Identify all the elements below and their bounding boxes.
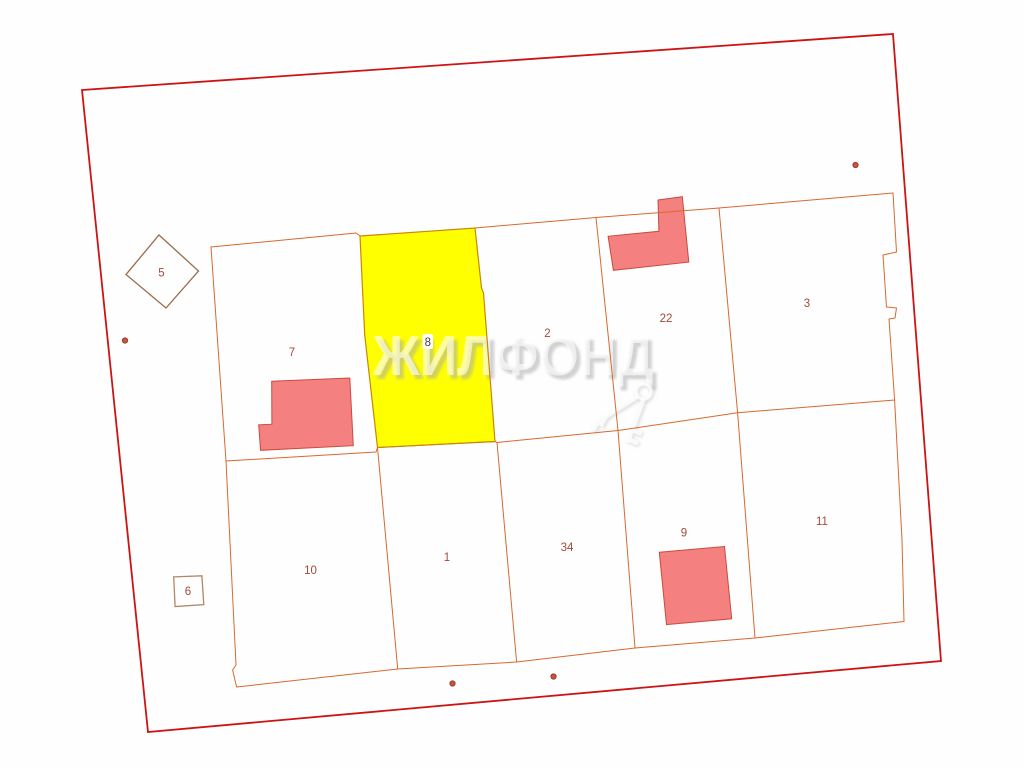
svg-text:3: 3	[804, 298, 810, 310]
svg-text:8: 8	[425, 337, 431, 349]
svg-text:22: 22	[660, 313, 673, 325]
svg-text:11: 11	[816, 516, 828, 528]
svg-text:10: 10	[304, 565, 317, 577]
svg-text:9: 9	[681, 528, 687, 540]
svg-text:34: 34	[561, 542, 574, 554]
svg-text:1: 1	[444, 552, 450, 564]
svg-text:7: 7	[289, 347, 295, 359]
svg-text:2: 2	[544, 328, 550, 340]
svg-text:ЖИЛФОНД: ЖИЛФОНД	[371, 324, 653, 388]
svg-text:5: 5	[158, 268, 164, 280]
svg-text:6: 6	[185, 586, 191, 598]
